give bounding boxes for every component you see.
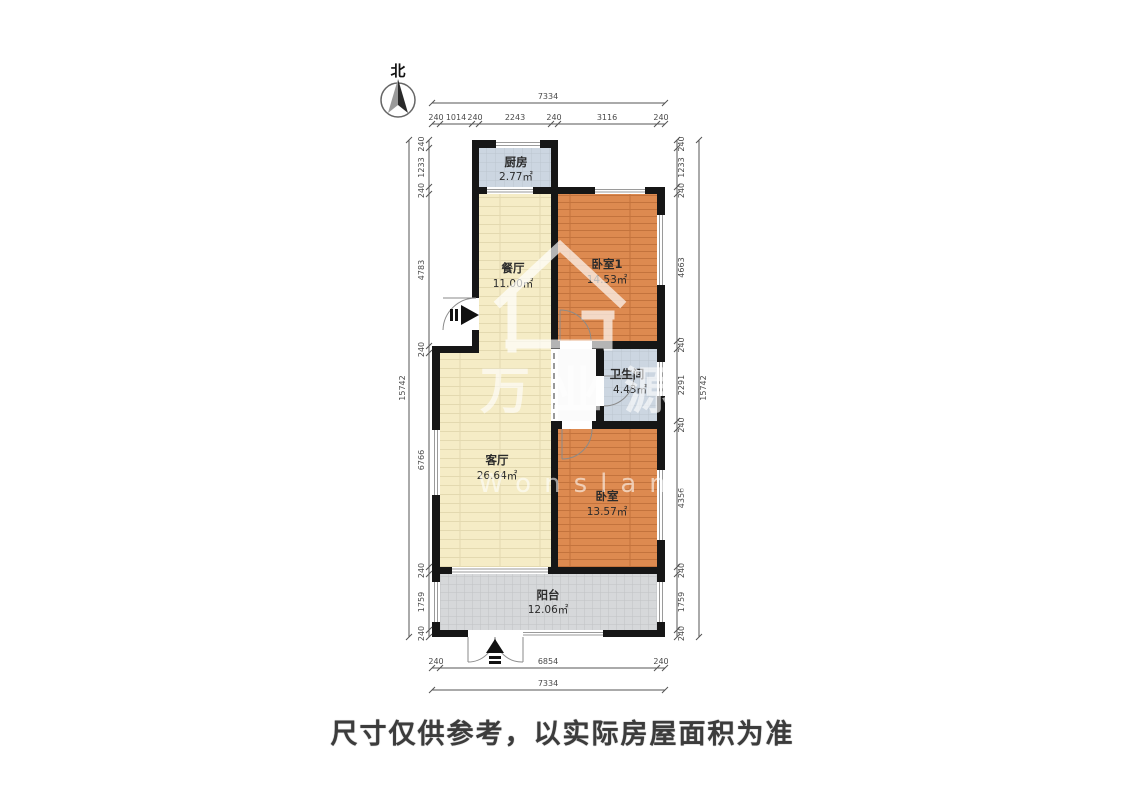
dim-left-seg: 240 [417, 563, 426, 578]
balcony-name: 阳台 [537, 588, 560, 602]
bedroom1-east-window-icon [660, 215, 663, 285]
balcony-west-window-icon [435, 582, 438, 622]
dim-right-seg: 4663 [677, 257, 686, 277]
dim-right-seg: 240 [677, 563, 686, 578]
kitchen-name: 厨房 [505, 155, 528, 169]
dim-top-total: 7334 [538, 92, 558, 101]
dim-right-seg: 240 [677, 136, 686, 151]
dim-left-seg: 6766 [417, 450, 426, 470]
balcony-east-window-icon [660, 582, 663, 622]
dining-name: 餐厅 [501, 261, 525, 275]
dim-bottom-seg: 240 [428, 657, 443, 666]
floorplan-svg: 北 [0, 0, 1125, 795]
balcony-arrow-stripe-icon [489, 656, 501, 659]
north-label: 北 [390, 62, 405, 80]
dim-left-seg: 1233 [417, 157, 426, 177]
entry-arrow-icon [461, 305, 479, 325]
dim-top-seg: 3116 [597, 113, 617, 122]
dim-top-seg: 240 [428, 113, 443, 122]
balcony-arrow-stripe-icon [489, 661, 501, 664]
kitchen-area: 2.77㎡ [499, 171, 533, 183]
kitchen-pass-window-icon [487, 190, 533, 193]
dim-top-seg: 240 [546, 113, 561, 122]
balcony-entry-arrow-icon [486, 639, 504, 653]
dim-top-seg: 2243 [505, 113, 525, 122]
living-name: 客厅 [485, 453, 509, 467]
dim-left-seg: 240 [417, 626, 426, 641]
balcony-sliding-door-icon [452, 569, 548, 572]
watermark-name-cn: 万业源 [480, 362, 696, 420]
dim-top-seg: 240 [653, 113, 668, 122]
balcony-area: 12.06㎡ [528, 604, 569, 616]
dim-left-total: 15742 [398, 375, 407, 400]
bedroom1-top-window-icon [595, 190, 645, 193]
dim-top-seg: 1014 [446, 113, 466, 122]
dim-right-seg: 1759 [677, 592, 686, 612]
dim-left-seg: 4783 [417, 260, 426, 280]
entry-arrow-stripe-icon [455, 309, 458, 321]
entry-arrow-stripe-icon [450, 309, 453, 321]
floorplan-canvas: 北 [0, 0, 1125, 795]
dim-left-seg: 240 [417, 183, 426, 198]
dim-top-seg: 240 [467, 113, 482, 122]
disclaimer-caption: 尺寸仅供参考，以实际房屋面积为准 [0, 712, 1125, 751]
kitchen-window-icon [496, 143, 540, 146]
dim-left-seg: 240 [417, 342, 426, 357]
dim-labels-bottom: 240 6854 240 7334 [428, 657, 668, 688]
dim-left-seg: 1759 [417, 592, 426, 612]
dim-right-seg: 240 [677, 626, 686, 641]
dim-bottom-total: 7334 [538, 679, 558, 688]
watermark-name-en: Wonsland [478, 469, 708, 499]
balcony-texture [440, 574, 657, 630]
bedroom1-name: 卧室1 [591, 257, 622, 271]
living-west-window-icon [435, 430, 438, 495]
dim-right-seg: 1233 [677, 157, 686, 177]
dim-bottom-seg: 240 [653, 657, 668, 666]
dim-right-seg: 240 [677, 337, 686, 352]
dim-right-seg: 240 [677, 183, 686, 198]
dim-bottom-seg: 6854 [538, 657, 558, 666]
dim-right-total: 15742 [699, 375, 708, 400]
north-arrow: 北 [381, 62, 415, 117]
bedroom2-area: 13.57㎡ [587, 506, 628, 518]
dim-labels-left: 15742 240 1233 240 4783 240 6766 240 175… [398, 136, 426, 641]
dim-labels-top: 7334 240 1014 240 2243 240 3116 240 [428, 92, 668, 122]
balcony-south-window-icon [523, 633, 603, 636]
dim-left-seg: 240 [417, 136, 426, 151]
